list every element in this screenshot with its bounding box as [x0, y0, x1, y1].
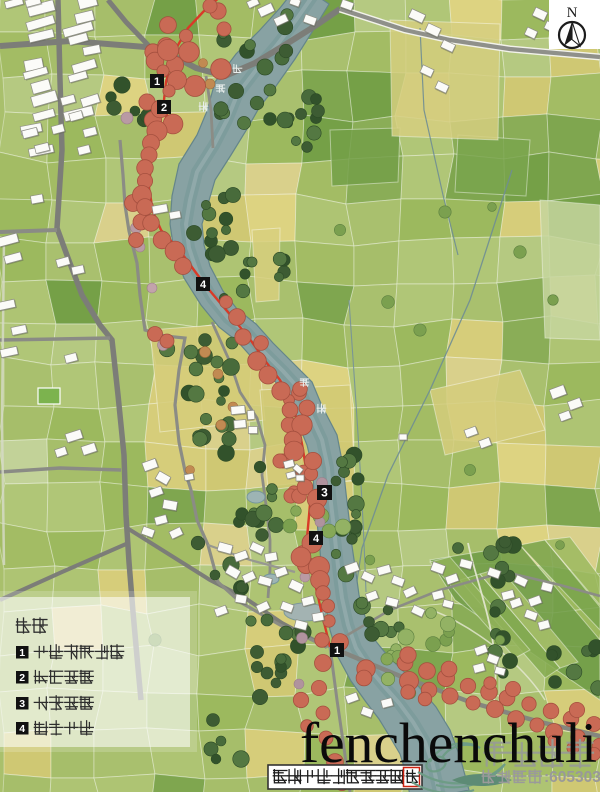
svg-text:3: 3 — [19, 698, 25, 710]
svg-text:2: 2 — [161, 102, 167, 114]
svg-text:fenchenchuli: fenchenchuli — [300, 712, 597, 775]
svg-text:1: 1 — [154, 76, 160, 88]
svg-text:4: 4 — [313, 533, 320, 545]
svg-text:4: 4 — [19, 723, 25, 735]
svg-text:2: 2 — [19, 672, 25, 684]
svg-text:1: 1 — [19, 647, 25, 659]
svg-text:1: 1 — [334, 645, 340, 657]
svg-text:3: 3 — [321, 486, 328, 500]
svg-text:N: N — [567, 5, 578, 21]
svg-text:4: 4 — [200, 279, 207, 291]
